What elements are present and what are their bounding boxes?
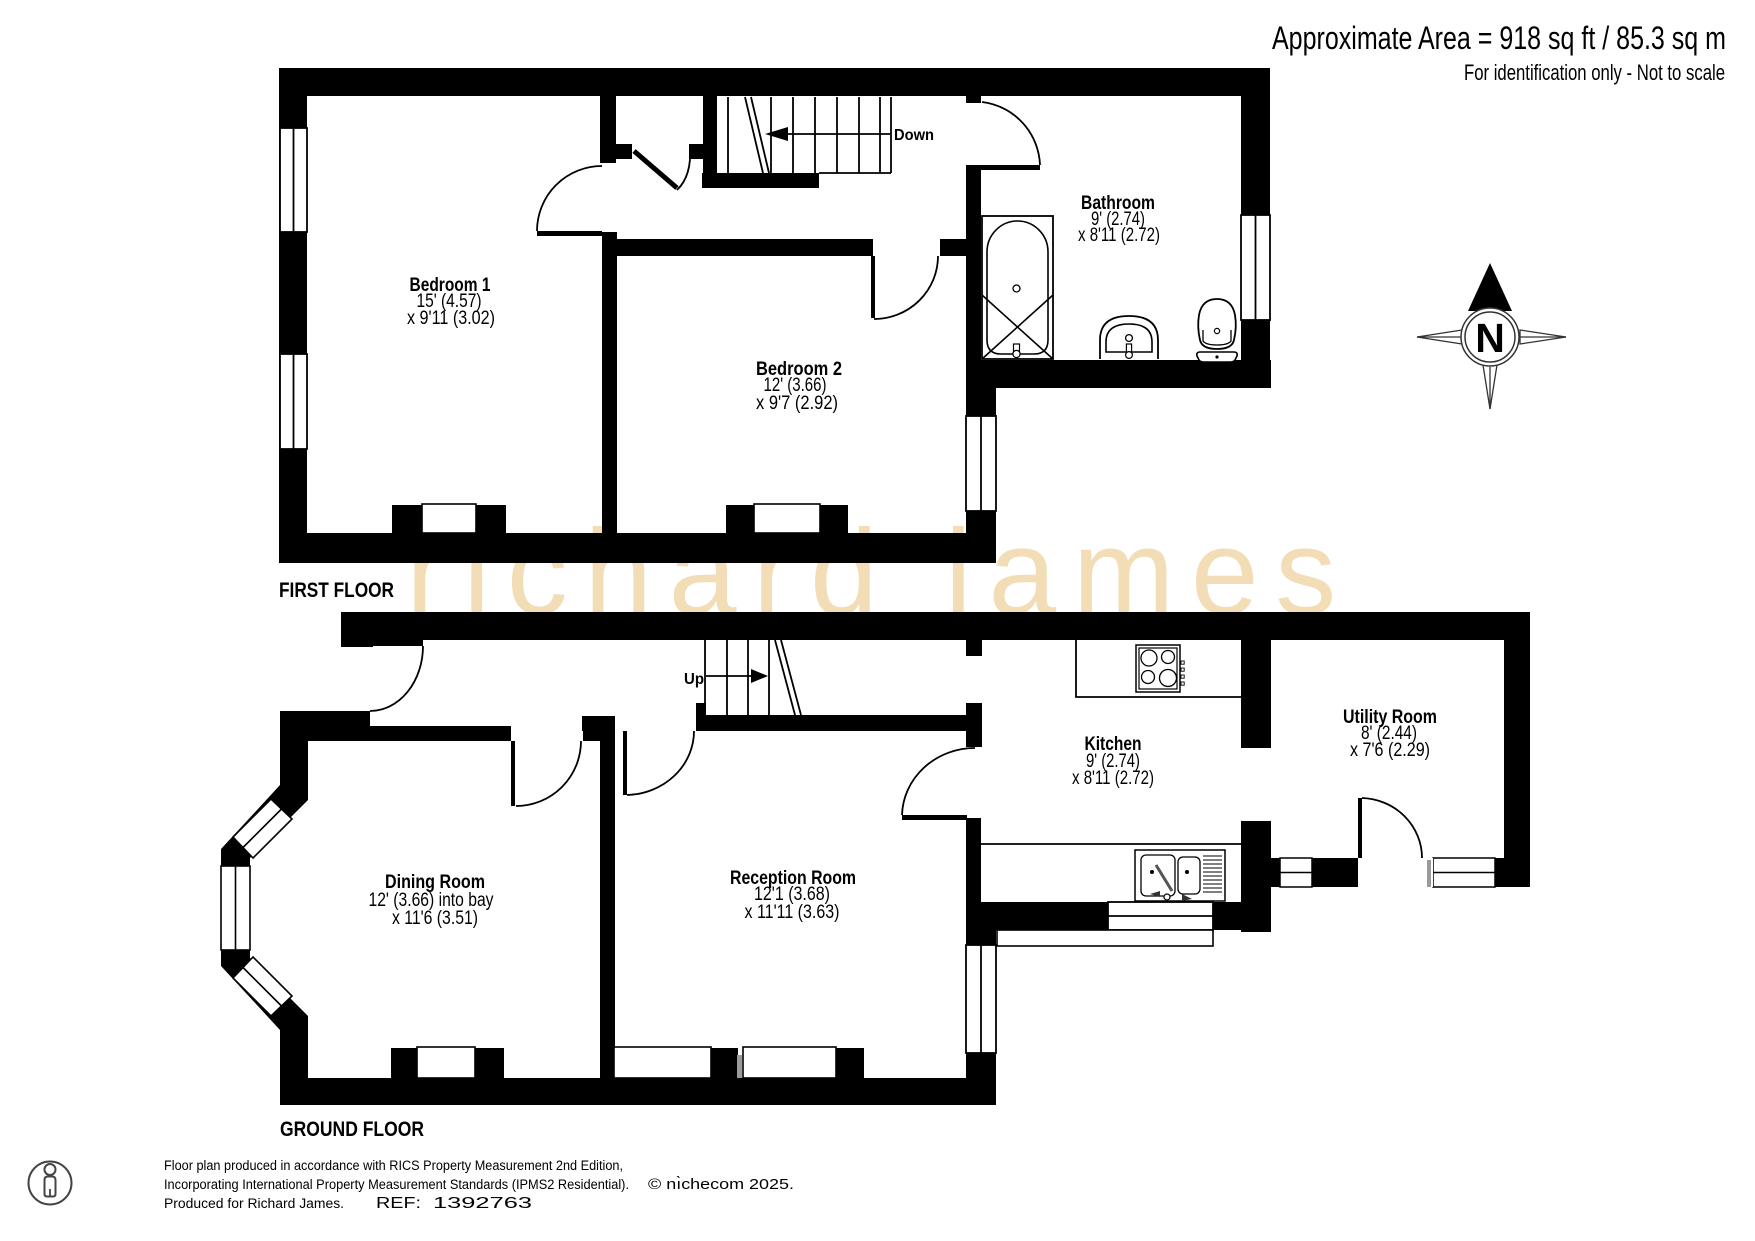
svg-text:Up: Up — [684, 671, 704, 688]
svg-text:x 9'7 (2.92): x 9'7 (2.92) — [756, 393, 838, 414]
svg-text:x 9'11 (3.02): x 9'11 (3.02) — [407, 308, 495, 329]
svg-text:FIRST FLOOR: FIRST FLOOR — [279, 579, 394, 602]
svg-text:x 11'11 (3.63): x 11'11 (3.63) — [745, 902, 840, 923]
svg-text:Approximate Area = 918 sq ft /: Approximate Area = 918 sq ft / 85.3 sq m — [1272, 20, 1726, 56]
svg-text:1392763: 1392763 — [433, 1195, 532, 1212]
svg-text:Produced for Richard James.: Produced for Richard James. — [164, 1196, 344, 1211]
svg-text:© nı̀checom 2025.: © nı̀checom 2025. — [648, 1176, 794, 1193]
svg-text:Incorporating International Pr: Incorporating International Property Mea… — [164, 1177, 629, 1192]
svg-text:N: N — [1475, 315, 1505, 361]
svg-text:x 8'11 (2.72): x 8'11 (2.72) — [1078, 225, 1160, 246]
svg-text:x 7'6 (2.29): x 7'6 (2.29) — [1350, 740, 1430, 761]
svg-text:x 11'6 (3.51): x 11'6 (3.51) — [392, 908, 478, 929]
svg-text:For identification only - Not: For identification only - Not to scale — [1464, 60, 1725, 85]
svg-text:x 8'11 (2.72): x 8'11 (2.72) — [1072, 768, 1154, 789]
svg-text:REF:: REF: — [376, 1195, 421, 1212]
svg-text:GROUND FLOOR: GROUND FLOOR — [280, 1118, 424, 1141]
svg-text:Down: Down — [894, 127, 934, 144]
svg-text:Floor plan produced in accorda: Floor plan produced in accordance with R… — [164, 1158, 623, 1173]
